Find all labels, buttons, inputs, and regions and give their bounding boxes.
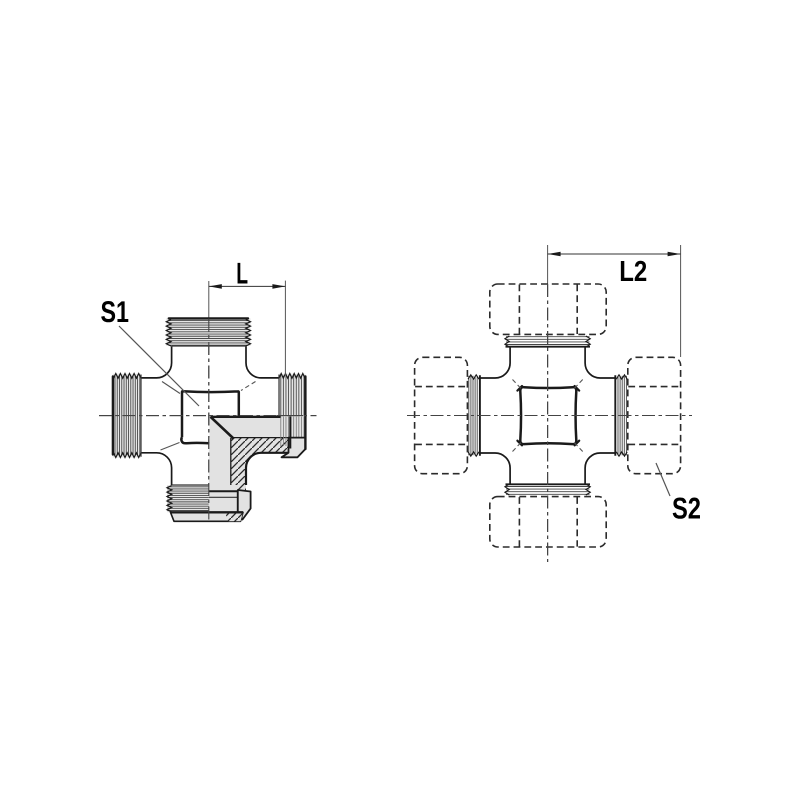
- svg-text:L: L: [236, 258, 248, 291]
- svg-text:S2: S2: [672, 493, 701, 526]
- svg-text:L2: L2: [619, 256, 647, 288]
- svg-text:S1: S1: [101, 296, 130, 329]
